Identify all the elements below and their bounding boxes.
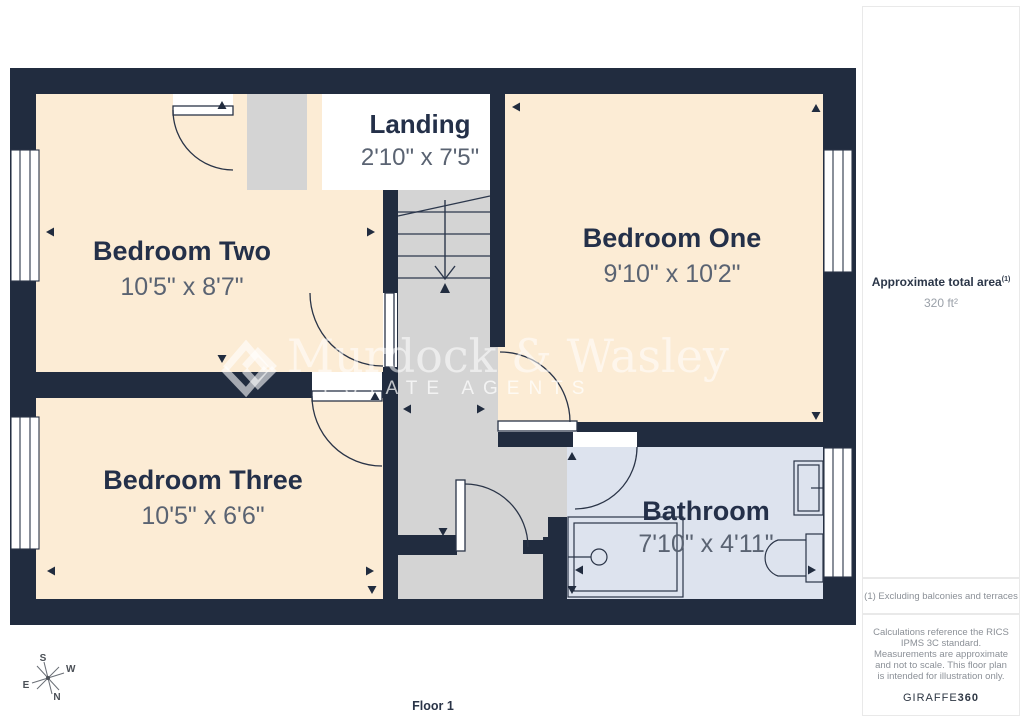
total-area-value: 320 ft² <box>924 296 958 310</box>
room-name: Bedroom One <box>583 223 762 253</box>
window-bedroom-two <box>11 150 39 281</box>
room-name: Bedroom Two <box>93 236 271 266</box>
hallway-floor-wide <box>398 447 567 517</box>
sidebar-footnote: (1) Excluding balconies and terraces <box>862 578 1020 614</box>
floor-label: Floor 1 <box>412 699 454 713</box>
wardrobe-alcove <box>247 94 307 190</box>
footnote-text: (1) Excluding balconies and terraces <box>864 591 1018 602</box>
room-dims: 2'10" x 7'5" <box>361 144 479 171</box>
window-bathroom <box>824 448 852 577</box>
sidebar-legal: Calculations reference the RICS IPMS 3C … <box>862 614 1020 716</box>
room-dims: 9'10" x 10'2" <box>603 260 740 288</box>
compass: S W E N <box>23 653 76 703</box>
watermark-tagline: ESTATE AGENTS <box>323 378 593 399</box>
room-dims: 7'10" x 4'11" <box>638 530 773 558</box>
compass-w: W <box>66 664 76 675</box>
doorway-bathroom <box>573 432 637 447</box>
room-name: Bedroom Three <box>103 465 303 495</box>
window-bedroom-three <box>11 417 39 549</box>
disclaimer-text: Calculations reference the RICS IPMS 3C … <box>873 627 1009 682</box>
room-name: Bathroom <box>642 496 770 526</box>
stairs-floor <box>398 190 490 290</box>
room-name: Landing <box>369 109 470 139</box>
giraffe360-logo: GIRAFFE360 <box>903 692 979 704</box>
compass-n: N <box>53 692 60 703</box>
room-dims: 10'5" x 8'7" <box>120 273 243 301</box>
room-bedroom-three-floor <box>36 398 383 599</box>
wall-stub-hall-right <box>523 540 543 554</box>
compass-e: E <box>23 680 30 691</box>
window-bedroom-one <box>824 150 852 272</box>
room-dims: 10'5" x 6'6" <box>141 502 264 530</box>
compass-s: S <box>40 653 47 664</box>
footnote-marker: (1) <box>1002 276 1011 283</box>
watermark-brand: Murdock & Wasley <box>287 329 729 383</box>
sidebar-total-area: Approximate total area(1) 320 ft² <box>862 6 1020 578</box>
wall-stub-hall-left <box>398 535 457 555</box>
total-area-label: Approximate total area(1) <box>872 275 1011 289</box>
